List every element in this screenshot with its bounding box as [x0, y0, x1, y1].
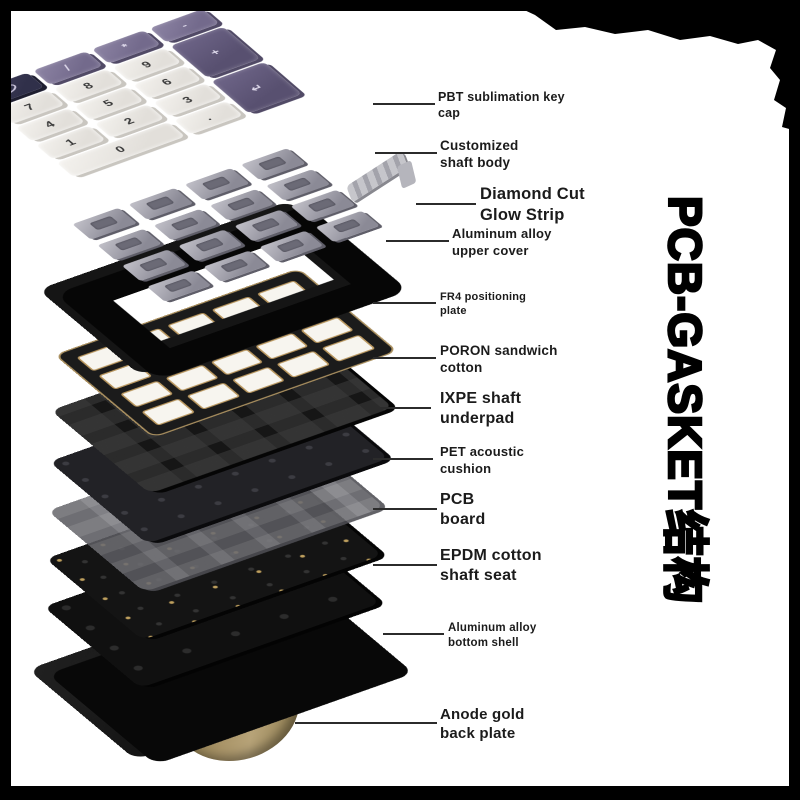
callout-label: Glow Strip — [480, 205, 585, 226]
callout-label: PCB — [440, 490, 485, 510]
leader-line — [373, 357, 436, 359]
brand-logo-icon — [0, 83, 20, 96]
callout-label: PORON sandwich — [440, 342, 558, 359]
callout-label: back plate — [440, 724, 525, 743]
leader-line — [373, 564, 437, 566]
diamond-cut-glow-strip — [346, 150, 408, 202]
leader-line — [295, 722, 437, 724]
leader-line — [373, 407, 431, 409]
leader-line — [386, 240, 449, 242]
callout-label: Customized — [440, 137, 519, 154]
leader-line — [416, 203, 476, 205]
callout-label: bottom shell — [448, 636, 536, 651]
callout-label: upper cover — [452, 243, 552, 260]
leader-line — [373, 103, 435, 105]
callout-label: shaft seat — [440, 566, 542, 586]
leader-line — [373, 508, 437, 510]
callout-label: cap — [438, 105, 565, 121]
leader-line — [373, 302, 436, 304]
callout-label: plate — [440, 304, 526, 318]
callout-label: EPDM cotton — [440, 546, 542, 566]
leader-line — [383, 633, 444, 635]
callout-label: cotton — [440, 359, 558, 376]
callout-label: Diamond Cut — [480, 184, 585, 205]
callout-label: Aluminum alloy — [452, 226, 552, 243]
callout-label: PET acoustic — [440, 444, 524, 461]
leader-line — [375, 152, 437, 154]
callout-label: PBT sublimation key — [438, 89, 565, 105]
keycap-cluster: / * - 7 8 9 + 4 5 6 1 2 3 ↵ 0 . — [0, 7, 304, 178]
callout-label: Aluminum alloy — [448, 621, 536, 636]
page-title: PCB-GASKET结构 — [655, 196, 721, 604]
callout-label: underpad — [440, 409, 521, 429]
callout-label: board — [440, 510, 485, 530]
callout-label: cushion — [440, 461, 524, 478]
callout-label: FR4 positioning — [440, 290, 526, 304]
leader-line — [373, 458, 433, 460]
callout-label: IXPE shaft — [440, 389, 521, 409]
callout-label: Anode gold — [440, 705, 525, 724]
callout-label: shaft body — [440, 154, 519, 171]
